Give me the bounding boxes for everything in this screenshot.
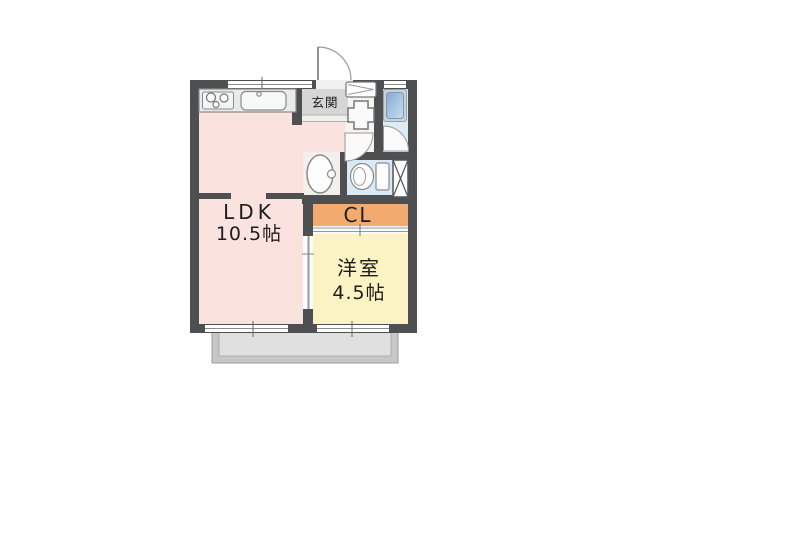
toilet-icon [351,163,390,190]
kitchen-stove-icon [203,92,234,109]
bath-window-icon [384,81,406,88]
bathroom [384,90,409,152]
ldk-label: LDK [223,200,275,224]
entrance-label: 玄関 [311,95,338,110]
stove-burner-3 [213,102,219,108]
wall-stub-right [266,193,304,199]
entry-door-swing [318,47,351,80]
entrance-step-line-1 [302,115,348,116]
sliding-door [302,236,314,309]
pipe-space-icon [393,160,408,197]
sink-basin [241,92,286,111]
closet-label: CL [343,203,372,227]
wall-left [190,80,199,333]
wall-stub-left [199,193,231,199]
balcony-floor [219,332,391,356]
floor-plan-page: LDK 10.5帖 CL 洋室 4.5帖 玄関 [0,0,800,548]
stove-burner-1 [207,93,216,102]
bathtub-icon [387,93,404,119]
wall-divider-bottom [303,309,313,333]
bedroom-label: 洋室 [337,256,381,280]
wall-bath-left [374,89,383,160]
wall-divider-top [303,195,313,236]
entrance-step [302,115,348,122]
toilet-tank [376,163,389,190]
shoe-cabinet-icon [346,82,376,97]
ldk-size-label: 10.5帖 [216,223,282,245]
sink-faucet [257,92,261,96]
wall-right [408,80,417,333]
balcony [212,332,398,363]
stove-burner-2 [220,94,228,102]
bedroom-size-label: 4.5帖 [332,282,385,304]
washbasin-faucet [328,170,336,178]
floor-plan: LDK 10.5帖 CL 洋室 4.5帖 玄関 [0,0,800,548]
kitchen-sink-icon [241,92,286,111]
kitchen-counter [199,89,296,112]
entrance-step-line-2 [302,121,348,122]
